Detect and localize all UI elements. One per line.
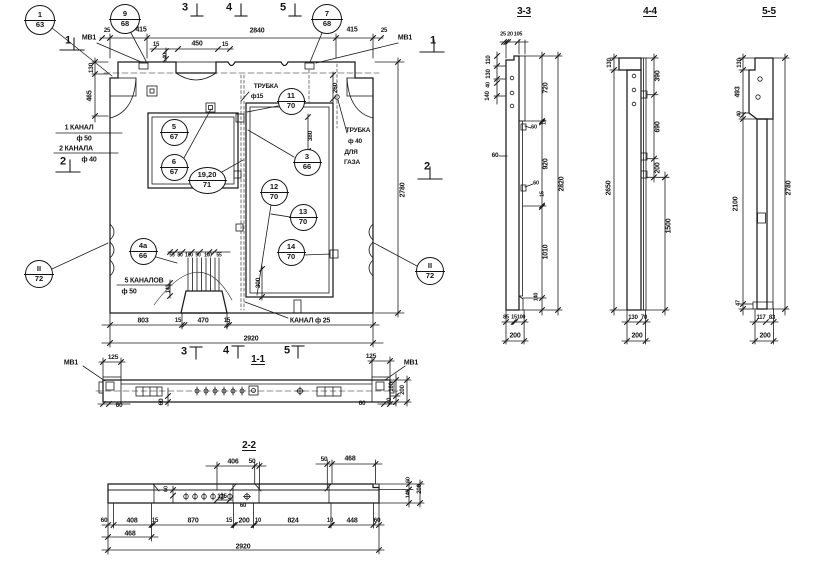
dim-110-33: 110	[486, 55, 492, 64]
callout-12-70-denominator: 70	[260, 192, 289, 202]
label-f40: ф 40	[81, 157, 96, 164]
callout-7-68: 768	[312, 4, 342, 34]
dim-60-11-right: 60	[359, 401, 366, 408]
label-trubka-15: ТРУБКА	[254, 84, 278, 91]
dim-105-33: 105	[514, 32, 523, 38]
dim-15-33b: 15	[540, 191, 546, 197]
dim-2780-plan: 2780	[400, 183, 407, 198]
callout-13-70-numerator: 13	[297, 208, 309, 217]
callout-3-66-numerator: 3	[303, 153, 311, 162]
sec-mark-2-left: 2	[60, 157, 66, 168]
dim-60-22-1: 60	[101, 518, 108, 525]
dim-720: 720	[543, 82, 550, 93]
dim-200-55: 200	[759, 333, 770, 340]
callout-13-70-denominator: 70	[289, 217, 318, 227]
dim-ch-100a: 100	[185, 254, 193, 259]
dim-125-11-left: 125	[108, 355, 118, 362]
callout-1-63-numerator: 1	[36, 11, 44, 20]
label-1-kanal: 1 КАНАЛ	[65, 125, 94, 132]
dim-70-44: 70	[641, 315, 647, 321]
dim-1500: 1500	[666, 219, 673, 234]
callout-11-70-numerator: 11	[285, 92, 297, 101]
dim-40-33: 40	[486, 82, 492, 88]
callout-14-70-denominator: 70	[277, 252, 306, 262]
dim-130-44b: 130	[628, 315, 637, 321]
callout-II-72-left: II72	[25, 260, 53, 288]
dim-2920-22: 2920	[236, 544, 251, 551]
label-mv1-11-left: МВ1	[64, 360, 78, 367]
callout-6-67-numerator: 6	[170, 158, 178, 167]
callout-4a-66-numerator: 4а	[137, 242, 149, 251]
dim-60-33a: 60	[531, 125, 537, 131]
label-kanal-25: КАНАЛ ф 25	[290, 318, 330, 325]
dim-200-22: 200	[238, 518, 249, 525]
callout-13-70: 1370	[290, 204, 317, 231]
dim-15-22a: 15	[152, 518, 158, 524]
dim-390: 390	[655, 70, 662, 81]
dim-60-22-b: 60	[240, 503, 246, 509]
label-mv1-11-right: МВ1	[404, 360, 418, 367]
dim-130-plan-left: 130	[89, 63, 96, 73]
dim-920: 920	[543, 158, 550, 169]
dim-15-niche-left: 15	[153, 42, 159, 48]
callout-4a-66: 4а66	[130, 238, 157, 265]
dim-200-44: 200	[631, 333, 642, 340]
callout-II-72-right: II72	[416, 257, 444, 285]
callout-II-72-right-denominator: 72	[415, 271, 445, 281]
dim-10-22b: 10	[327, 518, 333, 524]
callout-19-20-71: 19,2071	[189, 167, 226, 194]
callout-7-68-denominator: 68	[311, 19, 343, 29]
sec-mark-1-left: 1	[65, 36, 71, 47]
label-f40-gas: ф 40	[348, 139, 362, 146]
dim-380: 380	[308, 131, 315, 141]
dim-140-33: 140	[485, 91, 491, 100]
dim-2820: 2820	[559, 177, 566, 192]
dim-450: 450	[191, 41, 202, 48]
dim-15-niche-right: 15	[222, 42, 228, 48]
dim-ch-55a: 55	[169, 254, 174, 259]
dim-40-55: 40	[737, 111, 743, 117]
dim-130-44: 130	[607, 58, 613, 67]
title-section-3-3: 3-3	[517, 7, 531, 17]
dim-300: 300	[256, 278, 263, 288]
callout-5-67-denominator: 67	[160, 132, 189, 142]
dim-47: 47	[736, 300, 742, 306]
dim-25-top-right: 25	[381, 28, 387, 34]
callout-11-70: 1170	[278, 88, 305, 115]
dim-20-33: 20	[507, 32, 513, 38]
sec-mark-5-top: 5	[280, 3, 286, 14]
sec-mark-4-bottom: 4	[223, 346, 229, 357]
dim-135: 135	[217, 494, 226, 500]
callout-11-70-denominator: 70	[277, 101, 306, 111]
dim-200-33: 200	[509, 333, 520, 340]
callout-12-70: 1270	[261, 179, 288, 206]
dim-ch-90: 90	[195, 254, 200, 259]
dim-200-11: 200	[400, 385, 406, 394]
dim-50-22b: 50	[321, 457, 328, 464]
callout-1-63-denominator: 63	[24, 20, 56, 30]
dim-2650: 2650	[606, 181, 613, 196]
dim-15-plan-b2: 15	[224, 318, 230, 324]
callout-19-20-71-denominator: 71	[188, 180, 227, 190]
callout-12-70-numerator: 12	[268, 183, 280, 192]
dim-468-bottom: 468	[124, 531, 135, 538]
dim-130-33: 130	[486, 69, 492, 78]
dim-448: 448	[346, 518, 357, 525]
dim-200-22-v: 200	[417, 484, 423, 493]
dim-85-33: 85	[503, 315, 509, 321]
callout-6-67-denominator: 67	[160, 167, 189, 177]
sec-mark-4-top: 4	[226, 3, 232, 14]
label-f50-bottom: ф 50	[121, 289, 136, 296]
callout-3-66-denominator: 66	[293, 162, 322, 172]
dim-2100: 2100	[733, 197, 740, 212]
dim-100-33: 100	[517, 315, 526, 321]
dim-468-top: 468	[344, 456, 355, 463]
label-f15: ф15	[251, 94, 263, 101]
dim-415-right: 415	[346, 27, 357, 34]
dim-60-22-2: 60	[374, 518, 381, 525]
dim-870: 870	[187, 518, 198, 525]
dim-ch-100b: 100	[204, 254, 212, 259]
callout-II-72-left-denominator: 72	[24, 274, 54, 284]
callout-14-70-numerator: 14	[285, 243, 297, 252]
dim-690: 690	[655, 121, 662, 132]
annotation-layer: 1МВ125415284041525МВ11345154501540130465…	[0, 0, 826, 569]
title-section-4-4: 4-4	[643, 7, 657, 17]
dim-140-33b: 140	[534, 293, 540, 302]
callout-3-66: 366	[294, 149, 321, 176]
dim-ch-55b: 55	[216, 254, 221, 259]
label-mv1-top-left: МВ1	[82, 35, 96, 42]
dim-15-33a: 15	[542, 119, 548, 125]
dim-15-plan-b1: 15	[175, 318, 181, 324]
dim-117: 117	[756, 315, 765, 321]
dim-25-top-left: 25	[104, 28, 110, 34]
dim-60-11-mid: 60	[159, 399, 166, 406]
dim-465-plan-left: 465	[87, 90, 94, 101]
dim-25-33: 25	[500, 32, 506, 38]
dim-125-11-right: 125	[366, 354, 376, 361]
callout-9-68: 968	[110, 4, 140, 34]
dim-83: 83	[769, 315, 775, 321]
dim-406: 406	[227, 459, 238, 466]
label-mv1-top-right: МВ1	[398, 35, 412, 42]
dim-40-11: 40	[387, 398, 393, 404]
dim-60-33-left: 60	[492, 153, 499, 160]
dim-470: 470	[197, 318, 208, 325]
callout-7-68-numerator: 7	[323, 10, 331, 19]
label-dlya: ДЛЯ	[344, 150, 357, 157]
callout-5-67-numerator: 5	[170, 123, 178, 132]
title-section-5-5: 5-5	[762, 7, 776, 17]
label-trubka-40: ТРУБКА	[346, 128, 370, 135]
callout-6-67: 667	[161, 154, 188, 181]
dim-140-plan: 140	[166, 285, 172, 294]
dim-2840: 2840	[250, 28, 265, 35]
callout-9-68-numerator: 9	[121, 10, 129, 19]
dim-803: 803	[137, 318, 148, 325]
sec-mark-1-right: 1	[430, 36, 436, 47]
dim-160-11: 160	[389, 382, 395, 391]
dim-824: 824	[287, 518, 298, 525]
title-section-1-1: 1-1	[251, 355, 265, 365]
label-f50: ф 50	[76, 136, 91, 143]
dim-60-22-in: 60	[164, 486, 170, 492]
callout-19-20-71-numerator: 19,20	[196, 171, 219, 180]
dim-200-44v: 200	[655, 162, 662, 173]
dim-15-22b: 15	[226, 518, 232, 524]
sec-mark-3-top: 3	[182, 3, 188, 14]
dim-408: 408	[126, 518, 137, 525]
dim-60-33b: 60	[533, 181, 539, 187]
dim-260: 260	[333, 83, 340, 93]
dim-493: 493	[735, 86, 742, 97]
dim-1010: 1010	[543, 245, 550, 260]
dim-40-niche: 40	[163, 53, 169, 59]
title-section-2-2: 2-2	[242, 441, 256, 451]
sec-mark-5-bottom: 5	[284, 346, 290, 357]
blueprint-canvas: 1МВ125415284041525МВ11345154501540130465…	[0, 0, 826, 569]
sec-mark-3-bottom: 3	[181, 347, 187, 358]
sec-mark-2-right: 2	[424, 162, 430, 173]
callout-14-70: 1470	[278, 239, 305, 266]
dim-50-22a: 50	[249, 459, 256, 466]
dim-ch-80: 80	[177, 254, 182, 259]
label-5-kanalov: 5 КАНАЛОВ	[125, 278, 164, 285]
dim-2780-55: 2780	[786, 181, 793, 196]
callout-4a-66-denominator: 66	[129, 251, 158, 261]
dim-130-55: 130	[737, 58, 743, 67]
label-gaza: ГАЗА	[344, 160, 360, 167]
dim-140-22-v: 140	[406, 490, 412, 499]
callout-1-63: 163	[25, 5, 55, 35]
dim-2920-plan: 2920	[244, 336, 259, 343]
label-2-kanala: 2 КАНАЛА	[59, 146, 93, 153]
callout-5-67: 567	[161, 119, 188, 146]
callout-II-72-right-numerator: II	[426, 262, 434, 271]
dim-60-11-left: 60	[116, 403, 123, 410]
dim-60-22-v: 60	[406, 477, 412, 483]
callout-II-72-left-numerator: II	[35, 265, 43, 274]
dim-10-22a: 10	[255, 518, 261, 524]
callout-9-68-denominator: 68	[109, 19, 141, 29]
